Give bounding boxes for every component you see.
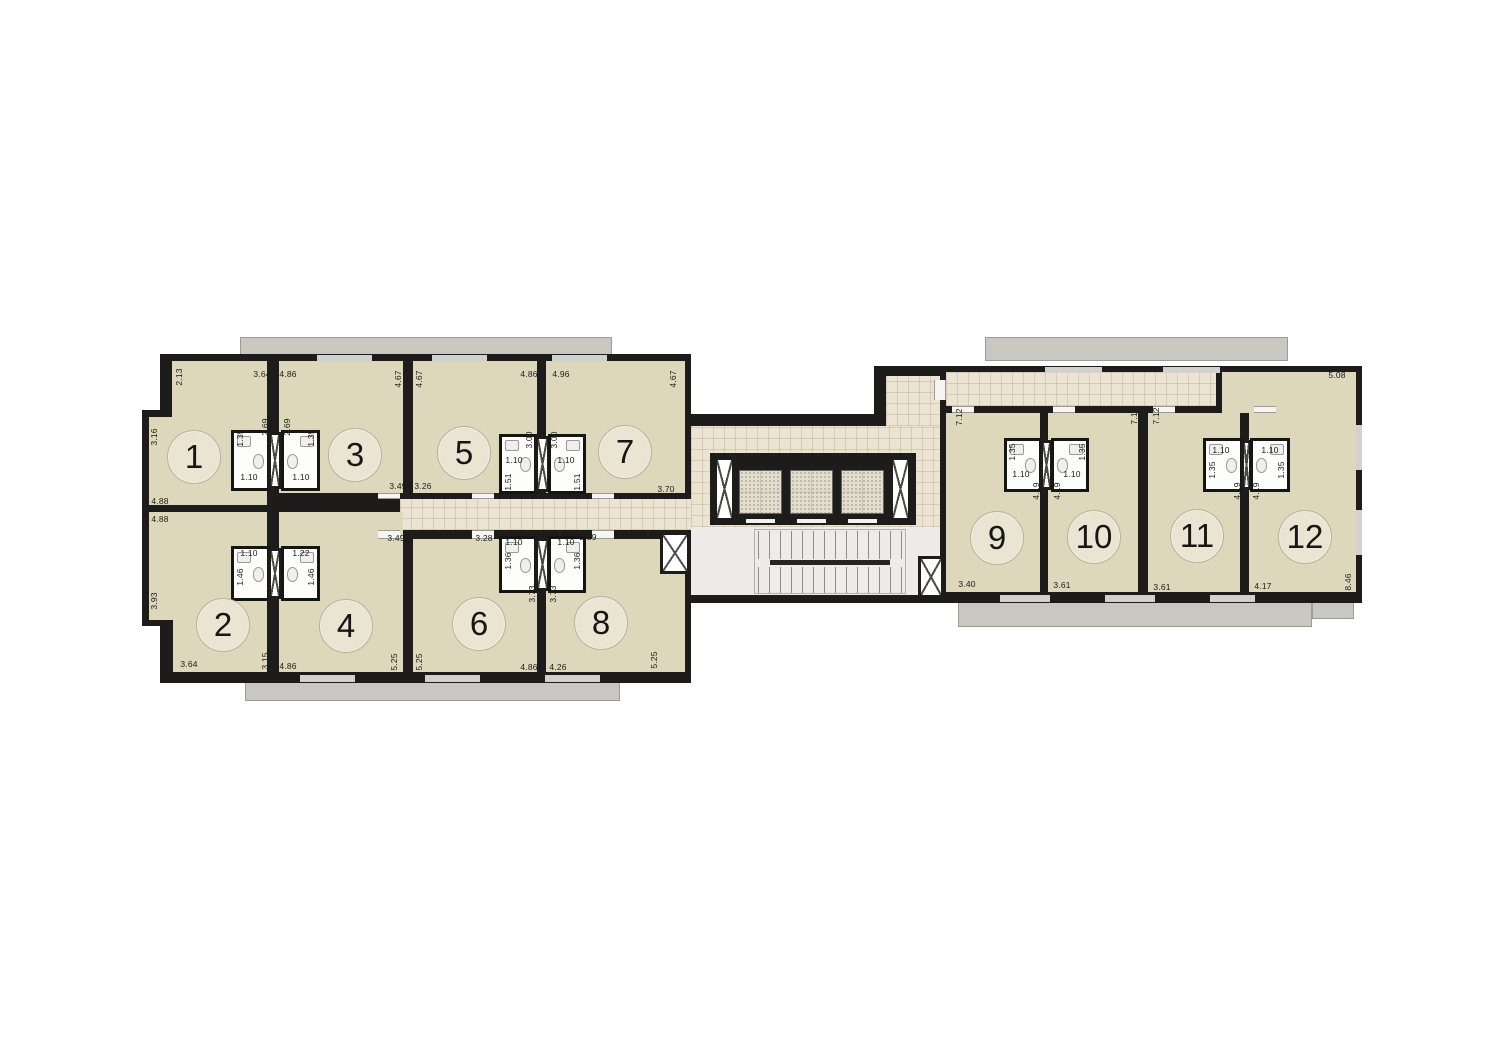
dimension-label: 7.12 [1151,407,1161,424]
dimension-label: 1.36 [503,552,513,569]
window [1000,595,1050,602]
dimension-label: 1.10 [240,548,257,558]
unit-number-badge-4: 4 [319,599,373,653]
duct-units-1-3 [268,432,282,489]
dimension-label: 2.69 [282,418,292,435]
dimension-label: 3.49 [389,481,406,491]
dimension-label: 4.67 [668,370,678,387]
dimension-label: 3.70 [657,484,674,494]
balcony-top-right [985,337,1288,361]
window [1105,595,1155,602]
elevator-door-3 [848,519,877,523]
toilet-icon [1256,458,1267,473]
door-unit-7 [592,493,614,499]
dimension-label: 1.10 [1212,445,1229,455]
dimension-label: 1.10 [292,472,309,482]
dimension-label: 2.89 [579,532,596,542]
dimension-label: 3.64 [180,659,197,669]
unit-number-badge-1: 1 [167,430,221,484]
wall-core-bottom [685,595,940,603]
window [1045,367,1102,373]
elevator-cab-3 [841,470,884,514]
window [552,355,607,362]
sink-icon [566,440,580,451]
dimension-label: 3.49 [387,533,404,543]
dimension-label: 4.19 [1052,482,1062,499]
dimension-label: 1.10 [505,455,522,465]
dimension-label: 1.10 [505,537,522,547]
sink-icon [505,440,519,451]
dimension-label: 3.15 [260,652,270,669]
dimension-label: 3.00 [524,431,534,448]
unit-number-badge-3: 3 [328,428,382,482]
dimension-label: 5.08 [1328,370,1345,380]
unit-number-badge-6: 6 [452,597,506,651]
unit-number-badge-8: 8 [574,596,628,650]
dimension-label: 5.25 [389,653,399,670]
dimension-label: 1.35 [306,429,316,446]
dimension-label: 3.93 [149,592,159,609]
dimension-label: 1.35 [1276,461,1286,478]
window [545,675,600,682]
window [432,355,487,362]
dimension-label: 4.86 [520,662,537,672]
duct-units-2-4 [268,548,282,599]
corridor-left-block [400,499,691,530]
dimension-label: 7.12 [1129,407,1139,424]
elevator-door-1 [746,519,775,523]
dimension-label: 4.88 [151,496,168,506]
dimension-label: 1.35 [1207,461,1217,478]
door-unit-10 [1053,406,1075,413]
dimension-label: 1.51 [503,473,513,490]
door-core-to-right-corridor [934,380,946,400]
window [317,355,372,362]
window [1163,367,1220,373]
elevator-door-2 [797,519,826,523]
elevator-cab-2 [790,470,833,514]
dimension-label: 1.51 [572,473,582,490]
toilet-icon [520,558,531,573]
wall-core-top [691,414,886,426]
dimension-label: 7.12 [954,408,964,425]
stair-landing [770,560,890,565]
wall-core-step-vertical [874,366,886,426]
shaft-stairs-east [918,556,944,598]
door-unit-12 [1254,406,1276,413]
dimension-label: 4.67 [393,370,403,387]
dimension-label: 3.64 [253,369,270,379]
toilet-icon [554,558,565,573]
dimension-label: 4.86 [279,661,296,671]
dimension-label: 4.88 [151,514,168,524]
dimension-label: 5.25 [649,651,659,668]
dimension-label: 1.10 [557,455,574,465]
dimension-label: 3.28 [475,533,492,543]
shaft-stairs-west [660,532,690,574]
window [1210,595,1255,602]
dimension-label: 1.10 [557,537,574,547]
dimension-label: 4.19 [1251,482,1261,499]
dimension-label: 1.10 [240,472,257,482]
dimension-label: 3.00 [549,431,559,448]
window [1356,425,1362,470]
stair-flight-upper [758,531,903,559]
unit-number-badge-12: 12 [1278,510,1332,564]
dimension-label: 3.61 [1153,582,1170,592]
elevator-cab-1 [739,470,782,514]
window [1356,510,1362,555]
toilet-icon [287,567,298,582]
unit-number-badge-2: 2 [196,598,250,652]
dimension-label: 1.46 [235,568,245,585]
dimension-label: 1.22 [292,548,309,558]
corridor-core-upper [886,376,940,426]
dimension-label: 1.35 [1077,443,1087,460]
dimension-label: 1.35 [1007,443,1017,460]
dimension-label: 1.46 [306,568,316,585]
window [425,675,480,682]
dimension-label: 4.96 [552,369,569,379]
dimension-label: 1.35 [235,429,245,446]
unit-number-badge-11: 11 [1170,509,1224,563]
elevator-shaft-left [714,457,735,521]
door-unit-5 [472,493,494,499]
dimension-label: 8.46 [1343,573,1353,590]
corridor-right-block [946,372,1216,406]
window [300,675,355,682]
dimension-label: 3.73 [527,585,537,602]
balcony-bottom-right-step [1312,601,1354,619]
balcony-bottom-right [958,601,1312,627]
dimension-label: 2.13 [174,368,184,385]
toilet-icon [253,567,264,582]
toilet-icon [287,454,298,469]
dimension-label: 2.69 [260,418,270,435]
dimension-label: 1.36 [572,552,582,569]
floor-plan-canvas: 123456789101112 2.133.644.864.674.674.86… [0,0,1500,1050]
toilet-icon [253,454,264,469]
stair-flight-lower [758,567,903,593]
dimension-label: 1.10 [1012,469,1029,479]
dimension-label: 4.67 [414,370,424,387]
door-unit-3 [378,493,400,499]
unit-number-badge-5: 5 [437,426,491,480]
unit-number-badge-9: 9 [970,511,1024,565]
dimension-label: 4.86 [520,369,537,379]
dimension-label: 3.40 [958,579,975,589]
dimension-label: 4.19 [1031,482,1041,499]
dimension-label: 3.26 [414,481,431,491]
dimension-label: 1.10 [1261,445,1278,455]
dimension-label: 4.26 [549,662,566,672]
dimension-label: 1.10 [1063,469,1080,479]
dimension-label: 4.19 [1232,482,1242,499]
dimension-label: 3.16 [149,428,159,445]
toilet-icon [1226,458,1237,473]
elevator-shaft-right [890,457,911,521]
dimension-label: 3.73 [548,585,558,602]
dimension-label: 3.61 [1053,580,1070,590]
dimension-label: 4.86 [279,369,296,379]
unit-number-badge-7: 7 [598,425,652,479]
dimension-label: 5.25 [414,653,424,670]
unit-number-badge-10: 10 [1067,510,1121,564]
dimension-label: 4.17 [1254,581,1271,591]
